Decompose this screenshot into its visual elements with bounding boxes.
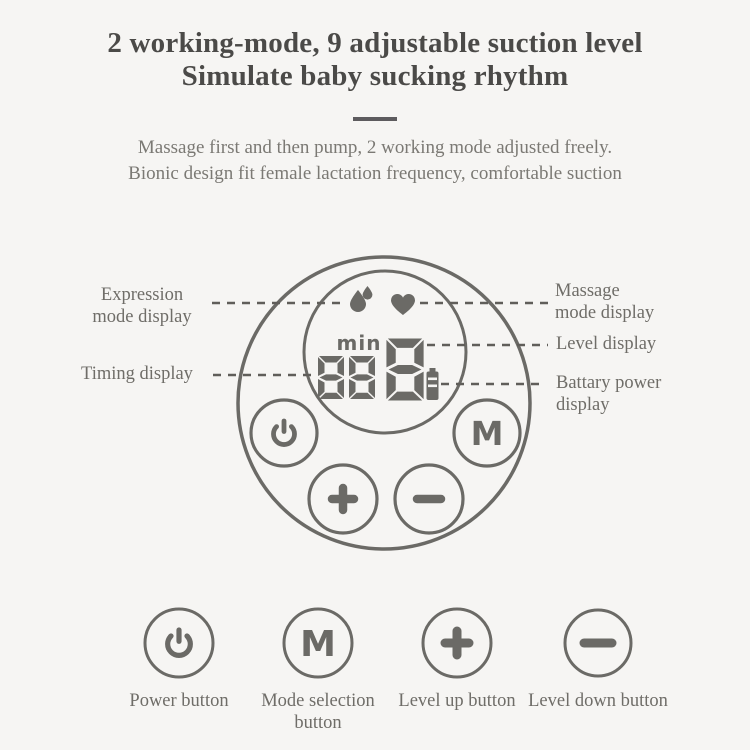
mode-letter: M (300, 624, 336, 665)
legend-label-level-up: Level up button (382, 690, 532, 712)
power-icon (168, 630, 191, 655)
battery-icon (427, 368, 439, 400)
power-icon (274, 421, 295, 445)
callout-massage-mode-display: Massage mode display (555, 281, 715, 324)
device-level-down-button (395, 465, 463, 533)
device-mode-button: M (454, 400, 520, 466)
plus-icon (332, 488, 354, 510)
water-drops-icon (350, 286, 372, 312)
product-infographic: 2 working-mode, 9 adjustable suction lev… (0, 0, 750, 750)
callout-text: display (556, 394, 716, 416)
legend-level-down-button (565, 610, 631, 676)
callout-timing-display: Timing display (62, 364, 212, 386)
plus-icon (445, 631, 469, 655)
mode-letter: M (471, 414, 504, 453)
legend-text: Level up button (382, 690, 532, 712)
callout-text: Expression (67, 285, 217, 307)
callout-level-display: Level display (556, 334, 716, 356)
legend-text: Level down button (518, 690, 678, 712)
display-screen-circle (304, 271, 466, 433)
legend-text: Power button (104, 690, 254, 712)
device-power-button (251, 400, 317, 466)
callout-text: Battary power (556, 372, 716, 394)
legend-label-mode-selection: Mode selection button (248, 690, 388, 734)
device-body-circle (238, 257, 530, 549)
legend-label-level-down: Level down button (518, 690, 678, 712)
legend-label-power: Power button (104, 690, 254, 712)
callout-text: mode display (555, 303, 715, 325)
level-digit (386, 338, 423, 400)
callout-expression-mode-display: Expression mode display (67, 285, 217, 328)
legend-text: Mode selection (248, 690, 388, 712)
callout-battery-power-display: Battary power display (556, 372, 716, 416)
legend-level-up-button (423, 609, 491, 677)
callout-text: Massage (555, 281, 715, 303)
min-indicator: min (337, 331, 382, 355)
legend-mode-button: M (284, 609, 352, 677)
legend-power-button (145, 609, 213, 677)
heart-icon (391, 294, 415, 315)
callout-text: Timing display (62, 364, 212, 386)
timing-digits (318, 356, 375, 399)
device-level-up-button (309, 465, 377, 533)
legend-text: button (248, 712, 388, 734)
callout-text: Level display (556, 334, 716, 356)
callout-text: mode display (67, 307, 217, 329)
